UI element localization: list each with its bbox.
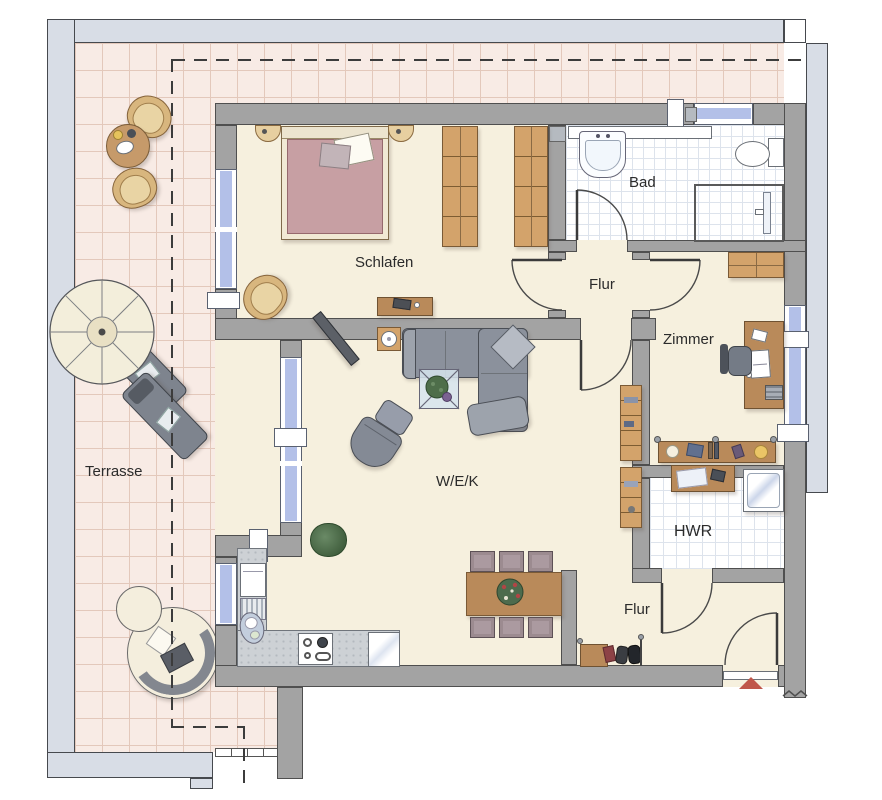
window-mullion — [215, 227, 237, 232]
bed-pillow-gray — [319, 142, 351, 169]
daybed-small-seat — [116, 586, 162, 632]
room-label-schlafen: Schlafen — [355, 254, 413, 271]
console-book — [714, 442, 719, 459]
console-ball-white — [666, 445, 679, 458]
coat-pole — [640, 638, 642, 666]
desk-laptop — [749, 349, 771, 378]
office-chair-seat — [728, 346, 752, 376]
room-label-flur-oben: Flur — [589, 276, 615, 293]
chair-cushion — [116, 171, 154, 208]
bath-sink — [579, 131, 626, 178]
wall — [215, 125, 237, 170]
console-pin — [770, 436, 777, 443]
duct-block — [549, 126, 566, 142]
washer-lid — [747, 473, 780, 508]
pole-pin — [638, 634, 644, 640]
dining-table — [466, 572, 562, 616]
wall — [215, 103, 694, 125]
chair-seat — [532, 555, 549, 568]
bed-headboard — [282, 127, 388, 139]
sideboard-divider — [729, 265, 783, 266]
wall — [631, 318, 656, 340]
chair-seat — [474, 555, 491, 568]
wall — [280, 340, 302, 358]
laptop-hinge — [753, 364, 767, 366]
toilet-tank — [768, 138, 784, 167]
terrace-floor-bottom — [215, 687, 277, 750]
window-glass — [696, 108, 751, 119]
lamp-dot — [396, 129, 401, 134]
wall — [561, 570, 577, 665]
window-sill-box — [777, 424, 809, 442]
wardrobe-1 — [442, 126, 478, 247]
room-label-terrasse: Terrasse — [85, 463, 143, 480]
dining-chair — [470, 617, 495, 638]
pole-pin — [577, 638, 583, 644]
boundary-dashed-left — [171, 59, 173, 727]
wall — [548, 240, 577, 252]
room-label-bad: Bad — [629, 174, 656, 191]
burner-oval — [315, 652, 331, 661]
lamp-dot — [262, 129, 267, 134]
dining-chair — [499, 617, 524, 638]
wall — [632, 310, 650, 318]
shelf-item — [624, 421, 634, 427]
wall — [548, 310, 566, 318]
wall — [548, 252, 566, 260]
dining-chair — [499, 551, 524, 572]
room-label-zimmer: Zimmer — [663, 331, 714, 348]
site-band-bottom — [47, 752, 213, 778]
site-band-left — [47, 19, 75, 778]
washing-machine — [743, 469, 784, 512]
chair-seat — [474, 621, 491, 634]
sink-basin — [585, 140, 621, 171]
room-label-flur-unten: Flur — [624, 601, 650, 618]
wall — [548, 125, 566, 240]
window-glass — [220, 565, 232, 623]
wall — [712, 568, 784, 583]
burner — [303, 638, 312, 647]
dining-chair — [528, 551, 553, 572]
window-sill-box — [667, 99, 684, 129]
console-pin — [654, 436, 661, 443]
site-band-right — [806, 43, 828, 493]
shower-glass-door — [763, 192, 771, 234]
bookshelf-2 — [620, 467, 642, 528]
zimmer-sideboard — [728, 252, 784, 278]
window-sill-box — [274, 428, 307, 447]
sofa-armrest — [403, 329, 416, 379]
site-band-top — [47, 19, 784, 43]
wardrobe-divider — [531, 127, 532, 246]
room-label-wek: W/E/K — [436, 473, 479, 490]
entrance-arrow — [739, 677, 763, 689]
table-lamp-dot — [387, 337, 391, 341]
floor-plan-canvas: Terrasse Schlafen Bad Flur Zimmer W/E/K … — [0, 0, 882, 800]
boundary-dashed-bottom2 — [243, 726, 245, 790]
site-band-top-step — [784, 19, 806, 43]
shower-handle — [755, 209, 764, 215]
room-label-hwr: HWR — [674, 523, 712, 541]
console-lamp-yellow — [754, 445, 768, 459]
wall — [784, 103, 806, 306]
wardrobe-2 — [514, 126, 548, 247]
wall — [632, 252, 650, 260]
chair-seat — [532, 621, 549, 634]
chair-seat — [503, 555, 520, 568]
bench-item — [414, 302, 420, 308]
wall-stub — [277, 687, 303, 779]
wall — [215, 665, 723, 687]
burner — [304, 652, 311, 659]
toilet-bowl — [735, 141, 770, 167]
laundry-cushion — [676, 467, 708, 489]
duct-block — [685, 107, 697, 122]
kitchen-dishwasher — [368, 632, 400, 667]
sink-bowl — [249, 629, 261, 640]
dining-chair — [470, 551, 495, 572]
faucet-dot — [596, 134, 600, 138]
window-mullion — [280, 461, 302, 466]
fridge-line — [243, 571, 263, 572]
wall — [280, 521, 302, 536]
desk-printer — [765, 385, 783, 400]
chair-seat — [503, 621, 520, 634]
kitchen-stove — [298, 633, 333, 665]
office-chair-back — [720, 344, 728, 374]
burner — [317, 637, 328, 648]
shelf-item — [624, 397, 638, 403]
console-book — [708, 442, 713, 459]
faucet-dot — [606, 134, 610, 138]
shelf-item — [624, 481, 638, 487]
site-band-bottom-step — [190, 778, 213, 789]
sofa-seam — [481, 373, 527, 374]
dining-chair — [528, 617, 553, 638]
window-glass — [789, 307, 801, 424]
coffee-table — [419, 369, 459, 409]
boundary-dashed-bottom — [171, 726, 245, 728]
wall — [784, 425, 806, 698]
wall — [632, 568, 662, 583]
shelf-item — [628, 506, 635, 513]
console-books-flat — [686, 443, 704, 459]
boundary-dashed-top — [172, 59, 804, 61]
terrace-railing — [215, 748, 277, 757]
kitchen-fridge — [240, 563, 266, 597]
wardrobe-divider — [460, 127, 461, 246]
lounger-towel — [156, 407, 181, 433]
table-item-dark — [127, 129, 136, 138]
plant-wek — [310, 523, 347, 557]
sink-bowl — [243, 616, 259, 631]
table-item-yellow — [113, 130, 123, 140]
bookshelf-1 — [620, 385, 642, 461]
window-sill-box — [207, 292, 240, 309]
